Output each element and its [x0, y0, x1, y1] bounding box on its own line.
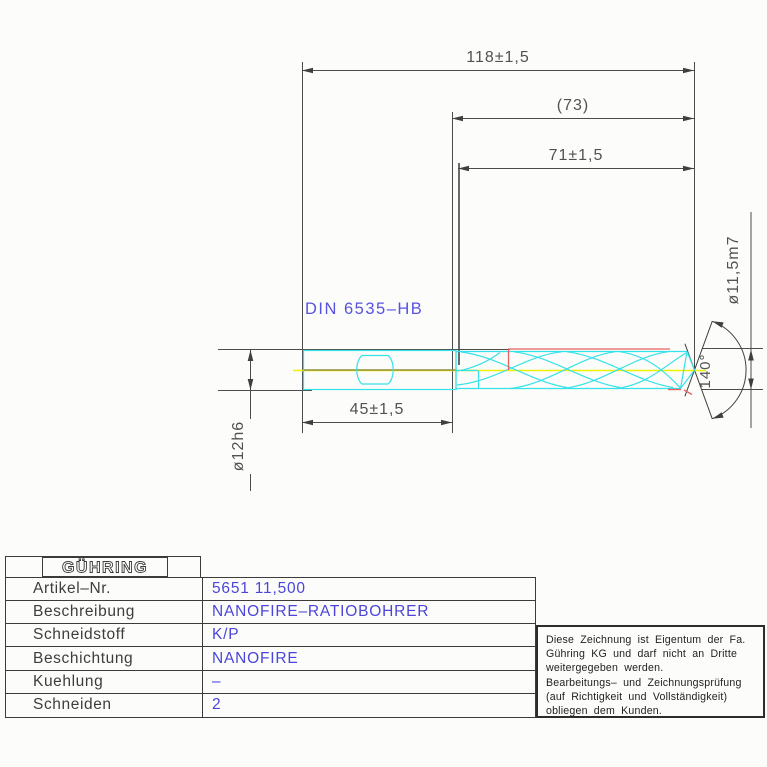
- table-row: Beschichtung NANOFIRE: [6, 647, 535, 670]
- note-line: obliegen dem Kunden.: [546, 704, 760, 718]
- dimension-label-flute-length: 71±1,5: [549, 147, 604, 164]
- guehring-logo-text: GÜHRING: [62, 558, 148, 577]
- logo-frame: GÜHRING: [42, 557, 168, 577]
- technical-drawing: 118±1,5 (73) 71±1,5 45±1,5 ø12h6 ø11,5m7…: [0, 0, 767, 552]
- dimension-label-aux-length: (73): [557, 97, 589, 114]
- note-line: Gühring KG und darf nicht an Dritte: [546, 647, 760, 661]
- dimension-arrows: [248, 68, 754, 426]
- shank-standard-label: DIN 6535–HB: [305, 300, 423, 318]
- note-line: (auf Richtigkeit und Vollständigkeit): [546, 690, 760, 704]
- row-label: Schneidstoff: [6, 624, 203, 646]
- title-block-table: Artikel–Nr. 5651 11,500 Beschreibung NAN…: [5, 577, 536, 718]
- note-line: weitergegeben werden.: [546, 661, 760, 675]
- table-row: Schneiden 2: [6, 694, 535, 717]
- table-row: Artikel–Nr. 5651 11,500: [6, 578, 535, 601]
- note-line: Diese Zeichnung ist Eigentum der Fa.: [546, 633, 760, 647]
- row-value: 5651 11,500: [203, 578, 535, 600]
- table-row: Schneidstoff K/P: [6, 624, 535, 647]
- row-label: Kuehlung: [6, 671, 203, 693]
- drawing-sheet: 118±1,5 (73) 71±1,5 45±1,5 ø12h6 ø11,5m7…: [0, 0, 767, 767]
- row-label: Beschreibung: [6, 601, 203, 623]
- row-value: K/P: [203, 624, 535, 646]
- row-value: –: [203, 671, 535, 693]
- row-label: Artikel–Nr.: [6, 578, 203, 600]
- table-row: Kuehlung –: [6, 671, 535, 694]
- dimension-label-overall-length: 118±1,5: [466, 49, 530, 66]
- dimension-label-shank-diameter: ø12h6: [230, 421, 247, 471]
- dimension-label-point-angle: 140°: [697, 353, 714, 388]
- note-line: Bearbeitungs– und Zeichnungsprüfung: [546, 676, 760, 690]
- row-value: NANOFIRE–RATIOBOHRER: [203, 601, 535, 623]
- table-row: Beschreibung NANOFIRE–RATIOBOHRER: [6, 601, 535, 624]
- row-label: Beschichtung: [6, 647, 203, 669]
- guehring-logo: GÜHRING: [43, 557, 167, 577]
- margin-highlight: [508, 349, 692, 395]
- row-value: 2: [203, 694, 535, 717]
- logo-cell: GÜHRING: [5, 556, 201, 578]
- row-value: NANOFIRE: [203, 647, 535, 669]
- extension-lines: [218, 62, 763, 491]
- dimension-label-shank-length: 45±1,5: [350, 401, 405, 418]
- ownership-note-box: Diese Zeichnung ist Eigentum der Fa. Güh…: [536, 625, 765, 718]
- dimension-label-cutting-diameter: ø11,5m7: [725, 236, 742, 305]
- row-label: Schneiden: [6, 694, 203, 717]
